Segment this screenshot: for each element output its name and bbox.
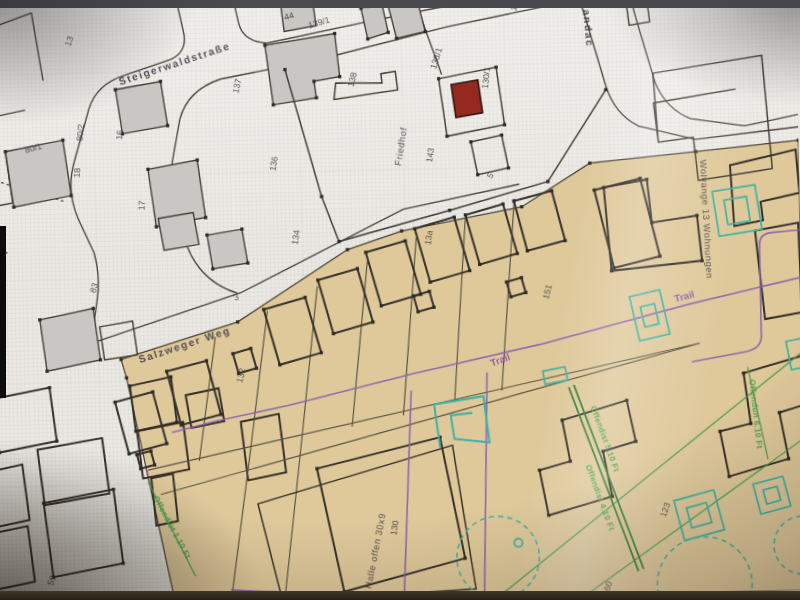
photo-edge-top [0, 0, 800, 8]
beige-zone-polygon [117, 140, 800, 600]
map-content: SteigerwaldstraßeSandacSalzweger WegFrie… [0, 0, 800, 600]
photo-edge-left [0, 226, 6, 398]
map-linework [0, 0, 800, 600]
photo-edge-bottom [0, 591, 800, 600]
map-photo: SteigerwaldstraßeSandacSalzweger WegFrie… [0, 0, 800, 600]
red-building [451, 80, 483, 118]
